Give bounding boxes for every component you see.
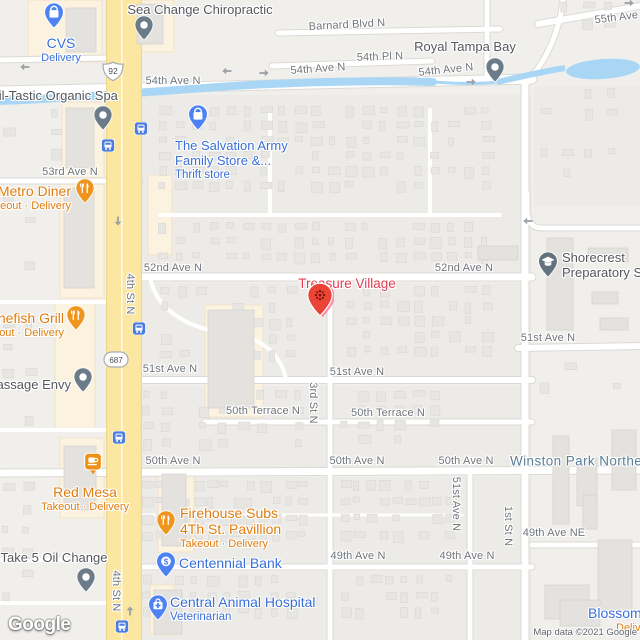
svg-text:$: $ — [164, 558, 169, 567]
place-pin-icon — [76, 567, 97, 593]
street-label: 49th Ave N — [439, 550, 494, 562]
place-pin-icon — [485, 57, 506, 83]
oneway-arrow-icon — [522, 211, 534, 229]
poi-label-take-5-oil-change[interactable]: Take 5 Oil Change — [1, 551, 108, 566]
cafe-pin-icon — [84, 452, 103, 475]
poi-pin-firehouse-subs-4th-st-pavillion[interactable] — [156, 510, 177, 541]
poi-label-cvs[interactable]: CVSDelivery — [41, 36, 81, 64]
state-route-shield-icon: 687 — [103, 351, 129, 368]
school-pin-icon — [537, 251, 559, 278]
street-label: 51st Ave N — [521, 332, 576, 344]
neighborhood-label: Winston Park Northeast — [510, 454, 640, 469]
veterinarian-pin-icon — [147, 594, 169, 621]
street-label: 50th Terrace N — [226, 405, 300, 417]
place-pin-icon — [134, 15, 155, 41]
poi-label-line: CVS — [41, 36, 81, 52]
poi-pin-central-animal-hospital[interactable] — [147, 594, 169, 626]
poi-label-central-animal-hospital[interactable]: Central Animal HospitalVeterinarian — [170, 595, 316, 624]
poi-label-line: Red Mesa — [41, 485, 129, 501]
street-label: 54th Ave N — [290, 61, 346, 77]
restaurant-pin-icon — [66, 305, 87, 331]
street-label: 4th St N — [124, 274, 136, 315]
street-label: 51st Ave N — [330, 366, 385, 378]
poi-label-line: 4Th St. Pavillion — [180, 522, 281, 538]
oneway-arrow-icon — [122, 605, 140, 617]
place-pin-icon — [73, 367, 94, 393]
oneway-arrow-icon — [19, 57, 31, 75]
svg-text:687: 687 — [109, 356, 123, 365]
poi-pin-centennial-bank[interactable]: $ — [155, 551, 177, 583]
oneway-arrow-icon — [108, 215, 126, 227]
poi-pin-metro-diner[interactable] — [75, 178, 96, 209]
poi-label-massage-envy[interactable]: Massage Envy — [0, 378, 71, 393]
poi-pin-red-mesa[interactable] — [84, 452, 103, 480]
street-label: 50th Terrace N — [351, 407, 425, 419]
poi-label-line: Firehouse Subs — [180, 506, 281, 522]
map-attribution: Map data ©2021 Google — [533, 627, 637, 638]
bus-icon — [135, 122, 148, 135]
poi-label-line: Thrift store — [175, 169, 288, 182]
poi-pin-cvs[interactable] — [43, 2, 65, 34]
google-logo[interactable]: Google — [8, 614, 70, 636]
poi-pin-nail-tastic-organic-spa[interactable] — [93, 105, 114, 136]
poi-label-line: Nail-Tastic Organic Spa — [0, 89, 118, 104]
poi-pin-shorecrest-preparatory-school[interactable] — [537, 251, 559, 283]
poi-pin-treasure-village[interactable] — [306, 281, 334, 323]
poi-pin-bonefish-grill[interactable] — [66, 305, 87, 336]
street-label: 1st St N — [502, 506, 514, 546]
destination-pin-icon — [306, 281, 334, 318]
poi-label-line: Central Animal Hospital — [170, 595, 316, 611]
shopping-bag-pin-icon — [43, 2, 65, 29]
poi-label-line: Shorecrest — [562, 251, 640, 266]
bus-stop-icon[interactable] — [135, 122, 148, 140]
bus-stop-icon[interactable] — [133, 322, 146, 340]
map-canvas[interactable]: Barnard Blvd N54th Pl N54th Ave N54th Av… — [0, 0, 640, 640]
bus-stop-icon[interactable] — [113, 431, 126, 449]
street-label: 53rd Ave N — [42, 166, 98, 178]
poi-label-bonefish-grill[interactable]: Bonefish GrillTakeout · Delivery — [0, 311, 64, 339]
street-label: 3rd St N — [307, 382, 319, 424]
poi-label-nail-tastic-organic-spa[interactable]: Nail-Tastic Organic Spa — [0, 89, 118, 104]
poi-pin-massage-envy[interactable] — [73, 367, 94, 398]
oneway-arrow-icon — [623, 0, 635, 13]
route-shield-fl-687: 687 — [103, 351, 129, 373]
poi-label-line: Family Store &... — [175, 154, 288, 169]
poi-label-line: Takeout · Delivery — [0, 200, 71, 213]
street-label: 54th Pl N — [357, 50, 404, 64]
street-label: 4th St N — [110, 571, 122, 612]
place-pin-icon — [93, 105, 114, 131]
street-label: 50th Ave N — [329, 455, 384, 467]
poi-pin-royal-tampa-bay[interactable] — [485, 57, 506, 88]
bus-stop-icon[interactable] — [116, 620, 129, 638]
restaurant-pin-icon — [75, 178, 96, 204]
poi-label-line: Metro Diner — [0, 184, 71, 200]
street-label: 54th Ave N — [145, 75, 200, 87]
poi-label-line: Centennial Bank — [179, 556, 282, 572]
poi-label-line: The Salvation Army — [175, 139, 288, 154]
poi-label-shorecrest-preparatory-school[interactable]: ShorecrestPreparatory School — [562, 251, 640, 281]
shopping-bag-pin-icon — [187, 104, 209, 131]
poi-label-line: Veterinarian — [170, 611, 316, 624]
poi-label-line: Bonefish Grill — [0, 311, 64, 327]
bus-icon — [113, 431, 126, 444]
poi-pin-salvation-army-family-store[interactable] — [187, 104, 209, 136]
route-shield-us-92: 92 — [101, 61, 125, 87]
poi-label-line: Royal Tampa Bay — [414, 40, 516, 55]
poi-label-line: Takeout · Delivery — [180, 538, 281, 551]
poi-label-salvation-army-family-store[interactable]: The Salvation ArmyFamily Store &...Thrif… — [175, 139, 288, 182]
restaurant-pin-icon — [156, 510, 177, 536]
poi-pin-take-5-oil-change[interactable] — [76, 567, 97, 598]
street-label: Barnard Blvd N — [308, 17, 385, 33]
street-label: 50th Ave N — [145, 455, 200, 467]
poi-pin-sea-change-chiropractic[interactable] — [134, 15, 155, 46]
poi-label-line: Massage Envy — [0, 378, 71, 393]
poi-label-line: Takeout · Delivery — [41, 501, 129, 514]
oneway-arrow-icon — [465, 74, 477, 92]
poi-label-line: Take 5 Oil Change — [1, 551, 108, 566]
poi-label-royal-tampa-bay[interactable]: Royal Tampa Bay — [414, 40, 516, 55]
street-label: 49th Ave NE — [523, 527, 586, 539]
poi-label-line: Blossom — [588, 606, 640, 622]
oneway-arrow-icon — [258, 65, 270, 83]
poi-label-line: Preparatory School — [562, 266, 640, 281]
street-label: 52nd Ave N — [144, 262, 202, 274]
bus-stop-icon[interactable] — [102, 139, 115, 157]
map-overlay: Barnard Blvd N54th Pl N54th Ave N54th Av… — [0, 0, 640, 640]
svg-text:92: 92 — [108, 66, 118, 76]
street-label: 49th Ave N — [330, 550, 385, 562]
poi-label-firehouse-subs-4th-st-pavillion[interactable]: Firehouse Subs4Th St. PavillionTakeout ·… — [180, 506, 281, 550]
poi-label-red-mesa[interactable]: Red MesaTakeout · Delivery — [41, 485, 129, 513]
street-label: 50th Ave N — [438, 455, 493, 467]
street-label: 51st Ave N — [143, 363, 198, 375]
street-label: 52nd Ave N — [435, 262, 493, 274]
bus-icon — [102, 139, 115, 152]
bus-icon — [116, 620, 129, 633]
oneway-arrow-icon — [221, 61, 233, 79]
bus-icon — [133, 322, 146, 335]
poi-label-centennial-bank[interactable]: Centennial Bank — [179, 556, 282, 572]
poi-label-metro-diner[interactable]: Metro DinerTakeout · Delivery — [0, 184, 71, 212]
poi-label-line: Takeout · Delivery — [0, 327, 64, 340]
street-label: 51st Ave N — [450, 477, 462, 532]
poi-label-line: Delivery — [41, 52, 81, 65]
bank-pin-icon: $ — [155, 551, 177, 578]
us-route-shield-icon: 92 — [101, 61, 125, 82]
